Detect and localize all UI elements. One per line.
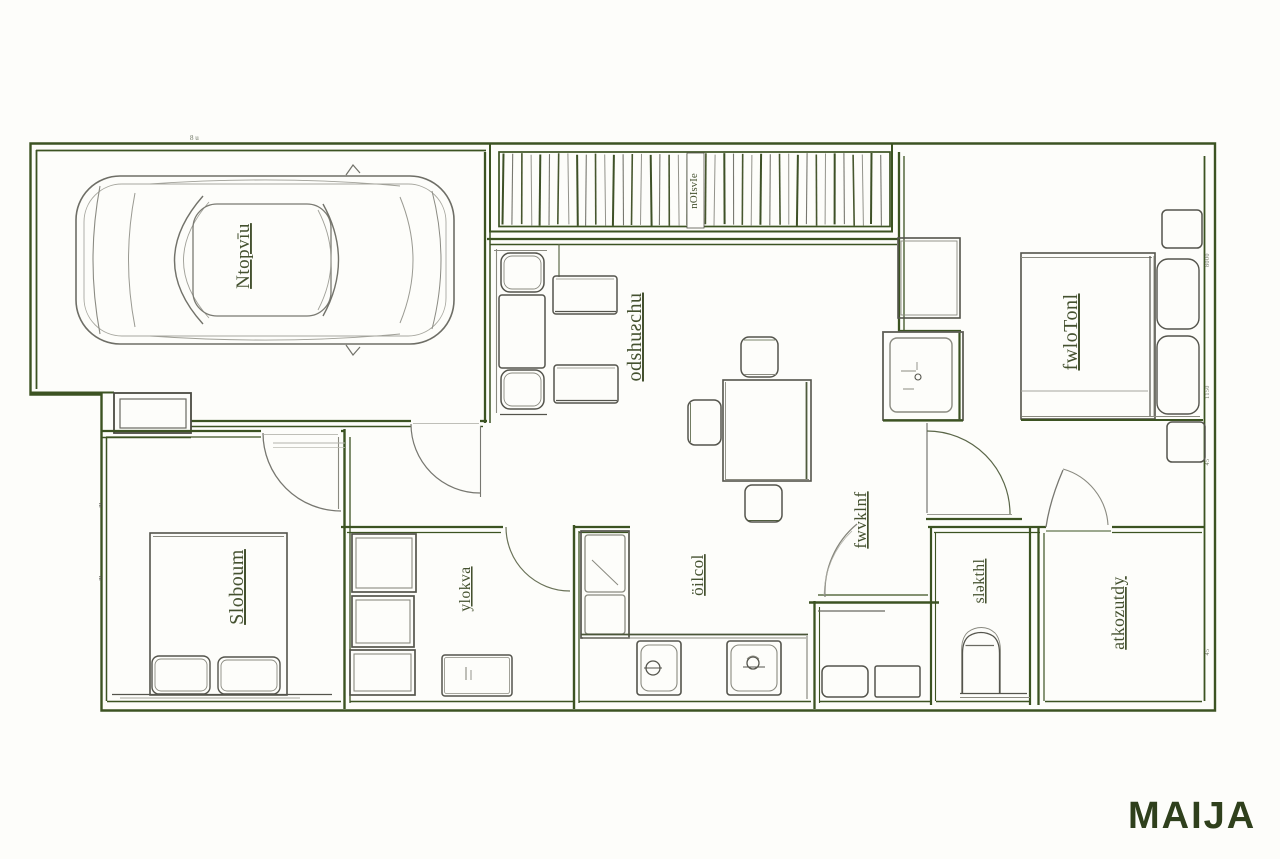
svg-text:Sloboum: Sloboum [226,549,248,625]
svg-text:Ntopvīu: Ntopvīu [233,223,254,289]
svg-text:öilcol: öilcol [688,554,707,596]
svg-text:MAIJA: MAIJA [1128,795,1256,837]
svg-text:ɯ: ɯ [98,502,104,507]
svg-text:fwvklnf: fwvklnf [851,491,870,548]
svg-text:odshuƨchu: odshuƨchu [624,293,646,382]
svg-text:ɯ: ɯ [98,575,104,580]
svg-text:nOIsvIe: nOIsvIe [688,173,700,209]
svg-text:45: 45 [1205,459,1211,466]
svg-text:atkozutdy: atkozutdy [1108,576,1128,650]
svg-text:45: 45 [1205,649,1211,656]
svg-text:fwloTonl: fwloTonl [1060,293,1082,370]
svg-text:8 u: 8 u [190,134,199,142]
svg-text:ylokva: ylokva [457,566,474,611]
svg-text:slǝkthl: slǝkthl [971,559,988,604]
svg-text:1150: 1150 [1205,385,1211,399]
svg-text:8000: 8000 [1205,253,1211,267]
